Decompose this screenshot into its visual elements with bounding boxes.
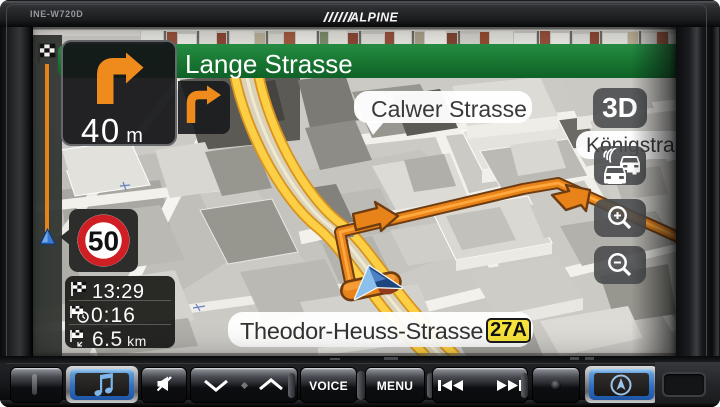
svg-text:50: 50 [88, 226, 119, 257]
